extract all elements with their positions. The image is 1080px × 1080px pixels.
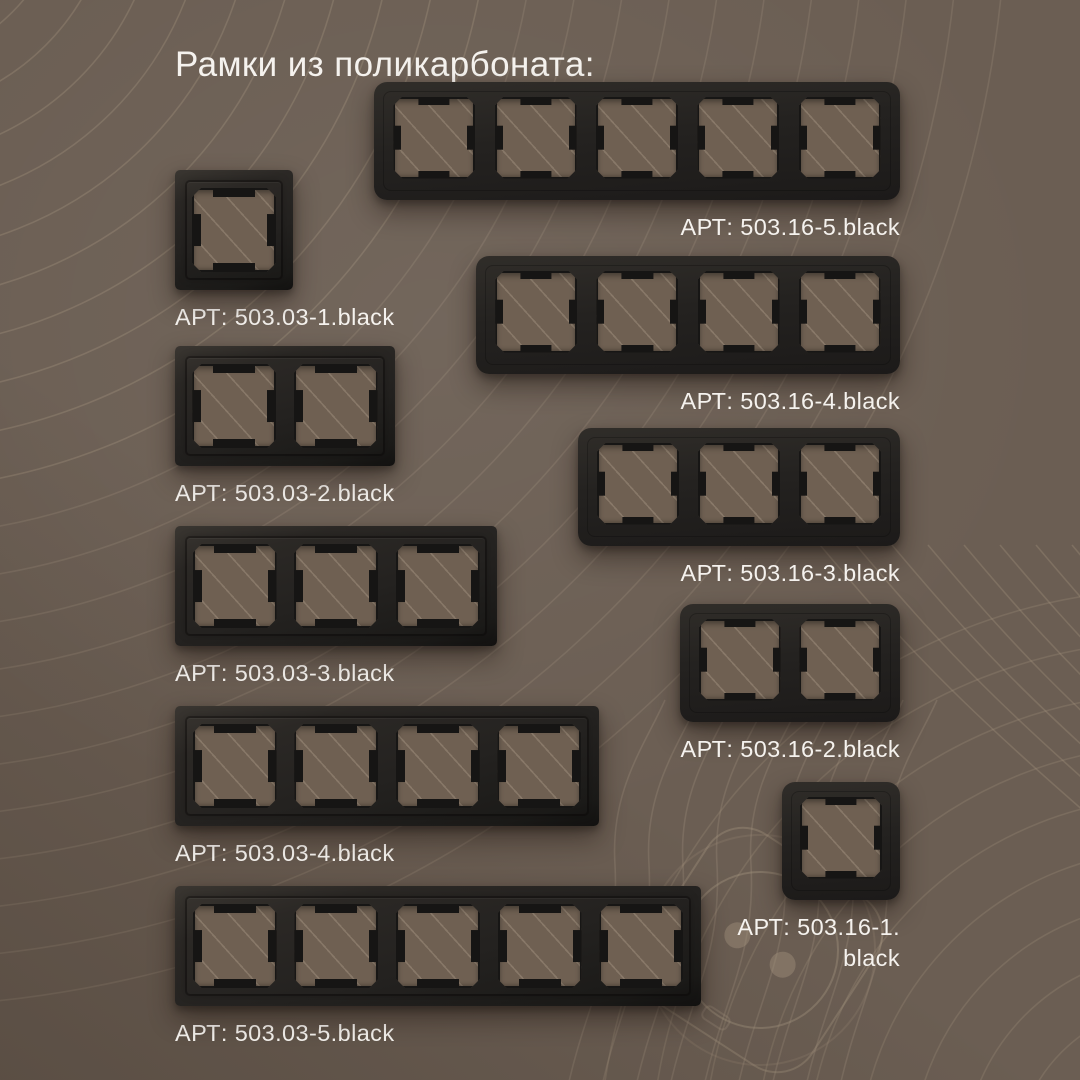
mount-tab [596, 125, 604, 150]
frame-window [495, 271, 577, 353]
mount-tab [622, 517, 653, 525]
mount-tab [620, 979, 662, 988]
mount-tab [315, 544, 357, 553]
mount-tab [268, 930, 277, 962]
mount-tab [724, 619, 755, 627]
article-label-line1: АРТ: 503.16-1. [560, 912, 900, 943]
mount-tab [670, 125, 678, 150]
frame-window [799, 271, 881, 353]
mount-tab [799, 471, 807, 496]
frame-window [597, 443, 679, 525]
product-article-label: АРТ: 503.16-3.black [560, 558, 900, 589]
mount-tab [799, 647, 807, 672]
article-label-line1: АРТ: 503.03-2.black [175, 478, 395, 509]
frame-window [800, 797, 882, 879]
mount-tab [369, 930, 378, 962]
product-article-label: АРТ: 503.03-4.black [175, 838, 599, 869]
mount-tab [193, 930, 202, 962]
product-card-503.16-4.black: АРТ: 503.16-4.black [476, 256, 900, 374]
product-article-label: АРТ: 503.03-5.black [175, 1018, 701, 1049]
mount-tab [315, 364, 357, 373]
frame-5-gang [374, 82, 900, 200]
mount-tab [622, 271, 653, 279]
article-label-line1: АРТ: 503.03-1.black [175, 302, 293, 333]
mount-tab [874, 825, 882, 850]
mount-tab [213, 439, 255, 448]
mount-tab [824, 271, 855, 279]
mount-tab [495, 125, 503, 150]
frame-window [294, 904, 378, 988]
mount-tab [873, 647, 881, 672]
frame-window [396, 904, 480, 988]
frame-window [192, 364, 276, 448]
frame-window [294, 544, 378, 628]
product-article-label: АРТ: 503.03-3.black [175, 658, 497, 689]
mount-tab [471, 570, 480, 602]
mount-tab [723, 345, 754, 353]
mount-tab [771, 125, 779, 150]
article-label-line1: АРТ: 503.16-4.black [560, 386, 900, 417]
mount-tab [569, 125, 577, 150]
frame-3-gang [578, 428, 900, 546]
mount-tab [521, 271, 552, 279]
mount-tab [824, 97, 855, 105]
mount-tab [723, 517, 754, 525]
page-title: Рамки из поликарбоната: [175, 45, 595, 85]
mount-tab [723, 271, 754, 279]
mount-tab [315, 724, 357, 733]
mount-tab [393, 125, 401, 150]
frame-2-gang [175, 346, 395, 466]
product-article-label: АРТ: 503.16-5.black [560, 212, 900, 243]
mount-tab [268, 570, 277, 602]
mount-tab [417, 619, 459, 628]
mount-tab [520, 171, 551, 179]
mount-tab [294, 570, 303, 602]
mount-tab [294, 390, 303, 422]
mount-tab [723, 443, 754, 451]
mount-tab [772, 299, 780, 324]
mount-tab [495, 299, 503, 324]
mount-tab [824, 443, 855, 451]
mount-tab [417, 904, 459, 913]
frame-window [799, 443, 881, 525]
mount-tab [213, 188, 255, 197]
mount-tab [824, 345, 855, 353]
product-card-503.16-2.black: АРТ: 503.16-2.black [680, 604, 900, 722]
frame-window [799, 97, 881, 179]
mount-tab [723, 171, 754, 179]
mount-tab [267, 390, 276, 422]
mount-tab [622, 345, 653, 353]
mount-tab [521, 345, 552, 353]
mount-tab [873, 471, 881, 496]
product-article-label: АРТ: 503.16-2.black [560, 734, 900, 765]
mount-tab [192, 214, 201, 246]
product-article-label: АРТ: 503.03-1.black [175, 302, 293, 333]
mount-tab [622, 443, 653, 451]
product-card-503.16-1.black: АРТ: 503.16-1.black [782, 782, 900, 900]
mount-tab [519, 979, 561, 988]
frame-window [396, 544, 480, 628]
frame-window [294, 724, 378, 808]
mount-tab [471, 930, 480, 962]
mount-tab [214, 979, 256, 988]
mount-tab [621, 171, 652, 179]
mount-tab [192, 390, 201, 422]
mount-tab [698, 471, 706, 496]
mount-tab [268, 750, 277, 782]
mount-tab [294, 750, 303, 782]
mount-tab [294, 930, 303, 962]
mount-tab [873, 125, 881, 150]
mount-tab [497, 750, 506, 782]
mount-tab [671, 471, 679, 496]
mount-tab [315, 619, 357, 628]
mount-tab [498, 930, 507, 962]
frame-window [294, 364, 378, 448]
mount-tab [800, 825, 808, 850]
mount-tab [369, 390, 378, 422]
mount-tab [214, 904, 256, 913]
mount-tab [396, 930, 405, 962]
mount-tab [596, 299, 604, 324]
mount-tab [824, 171, 855, 179]
mount-tab [670, 299, 678, 324]
product-card-503.16-5.black: АРТ: 503.16-5.black [374, 82, 900, 200]
mount-tab [419, 97, 450, 105]
article-label-line1: АРТ: 503.03-3.black [175, 658, 497, 689]
mount-tab [213, 364, 255, 373]
mount-tab [369, 570, 378, 602]
mount-tab [518, 724, 560, 733]
frame-window [799, 619, 881, 701]
mount-tab [799, 125, 807, 150]
mount-tab [315, 979, 357, 988]
mount-tab [520, 97, 551, 105]
mount-tab [396, 570, 405, 602]
mount-tab [825, 693, 856, 701]
frame-4-gang [175, 706, 599, 826]
mount-tab [417, 799, 459, 808]
article-label-line1: АРТ: 503.16-5.black [560, 212, 900, 243]
product-article-label: АРТ: 503.16-1.black [560, 912, 900, 973]
frame-window [697, 97, 779, 179]
frame-window [396, 724, 480, 808]
mount-tab [569, 299, 577, 324]
mount-tab [214, 619, 256, 628]
mount-tab [214, 544, 256, 553]
mount-tab [519, 904, 561, 913]
mount-tab [825, 871, 856, 879]
mount-tab [315, 439, 357, 448]
frame-2-gang [680, 604, 900, 722]
frame-window [192, 188, 276, 272]
product-card-503.03-1.black: АРТ: 503.03-1.black [175, 170, 293, 333]
mount-tab [825, 797, 856, 805]
frame-window [699, 619, 781, 701]
mount-tab [773, 647, 781, 672]
mount-tab [213, 263, 255, 272]
article-label-line1: АРТ: 503.03-5.black [175, 1018, 701, 1049]
mount-tab [597, 471, 605, 496]
mount-tab [723, 97, 754, 105]
mount-tab [193, 570, 202, 602]
mount-tab [315, 799, 357, 808]
mount-tab [419, 171, 450, 179]
mount-tab [417, 979, 459, 988]
article-label-line1: АРТ: 503.16-2.black [560, 734, 900, 765]
frame-window [193, 544, 277, 628]
mount-tab [214, 724, 256, 733]
product-card-503.16-3.black: АРТ: 503.16-3.black [578, 428, 900, 546]
mount-tab [417, 724, 459, 733]
mount-tab [772, 471, 780, 496]
mount-tab [697, 125, 705, 150]
mount-tab [518, 799, 560, 808]
frame-4-gang [476, 256, 900, 374]
product-article-label: АРТ: 503.16-4.black [560, 386, 900, 417]
product-article-label: АРТ: 503.03-2.black [175, 478, 395, 509]
frame-window [698, 271, 780, 353]
frame-window [596, 271, 678, 353]
frame-window [393, 97, 475, 179]
mount-tab [698, 299, 706, 324]
mount-tab [824, 517, 855, 525]
frame-window [698, 443, 780, 525]
mount-tab [873, 299, 881, 324]
mount-tab [315, 904, 357, 913]
article-label-line1: АРТ: 503.03-4.black [175, 838, 599, 869]
article-label-line2: black [560, 943, 900, 974]
frame-window [495, 97, 577, 179]
mount-tab [267, 214, 276, 246]
frame-3-gang [175, 526, 497, 646]
frame-window [193, 724, 277, 808]
mount-tab [724, 693, 755, 701]
mount-tab [621, 97, 652, 105]
article-label-line1: АРТ: 503.16-3.black [560, 558, 900, 589]
mount-tab [799, 299, 807, 324]
mount-tab [825, 619, 856, 627]
mount-tab [214, 799, 256, 808]
frame-1-gang [782, 782, 900, 900]
frame-window [596, 97, 678, 179]
product-card-503.03-2.black: АРТ: 503.03-2.black [175, 346, 395, 509]
mount-tab [471, 750, 480, 782]
mount-tab [369, 750, 378, 782]
mount-tab [699, 647, 707, 672]
mount-tab [193, 750, 202, 782]
product-card-503.03-4.black: АРТ: 503.03-4.black [175, 706, 599, 869]
mount-tab [417, 544, 459, 553]
frame-window [193, 904, 277, 988]
product-card-503.03-3.black: АРТ: 503.03-3.black [175, 526, 497, 689]
frame-1-gang [175, 170, 293, 290]
mount-tab [467, 125, 475, 150]
mount-tab [396, 750, 405, 782]
